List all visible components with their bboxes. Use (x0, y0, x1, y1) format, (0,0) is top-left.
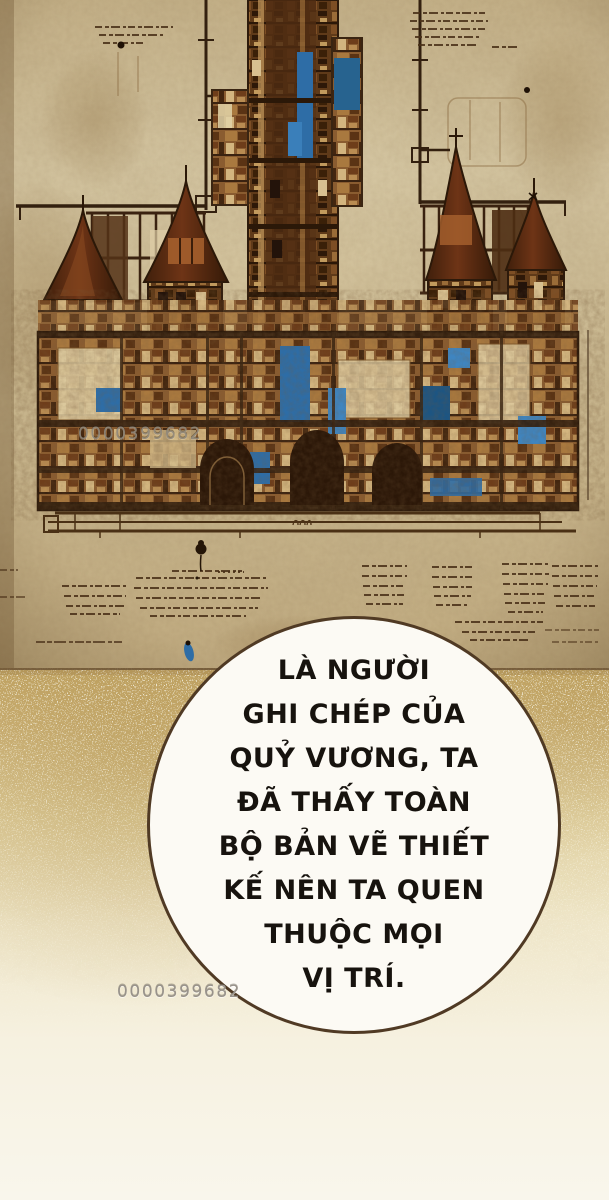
watermark-top: 0000399682 (78, 424, 202, 444)
comic-page: 0000399682 LÀ NGƯỜI GHI CHÉP CỦA QUỶ VƯƠ… (0, 0, 609, 1200)
speech-bubble: LÀ NGƯỜI GHI CHÉP CỦA QUỶ VƯƠNG, TA ĐÃ T… (147, 616, 561, 1034)
watermark-bottom: 0000399682 (117, 982, 241, 1002)
castle-main-body (38, 300, 578, 510)
speech-bubble-text: LÀ NGƯỜI GHI CHÉP CỦA QUỶ VƯƠNG, TA ĐÃ T… (219, 649, 490, 1001)
dialog-line: ĐÃ THẤY TOÀN (219, 781, 490, 825)
castle-blueprint-art (0, 0, 609, 672)
dialog-line: VỊ TRÍ. (219, 957, 490, 1001)
dialog-line: BỘ BẢN VẼ THIẾT (219, 825, 490, 869)
dialog-line: GHI CHÉP CỦA (219, 693, 490, 737)
dialog-line: KẾ NÊN TA QUEN (219, 869, 490, 913)
dialog-line: QUỶ VƯƠNG, TA (219, 737, 490, 781)
dialog-line: LÀ NGƯỜI (219, 649, 490, 693)
dialog-line: THUỘC MỌI (219, 913, 490, 957)
